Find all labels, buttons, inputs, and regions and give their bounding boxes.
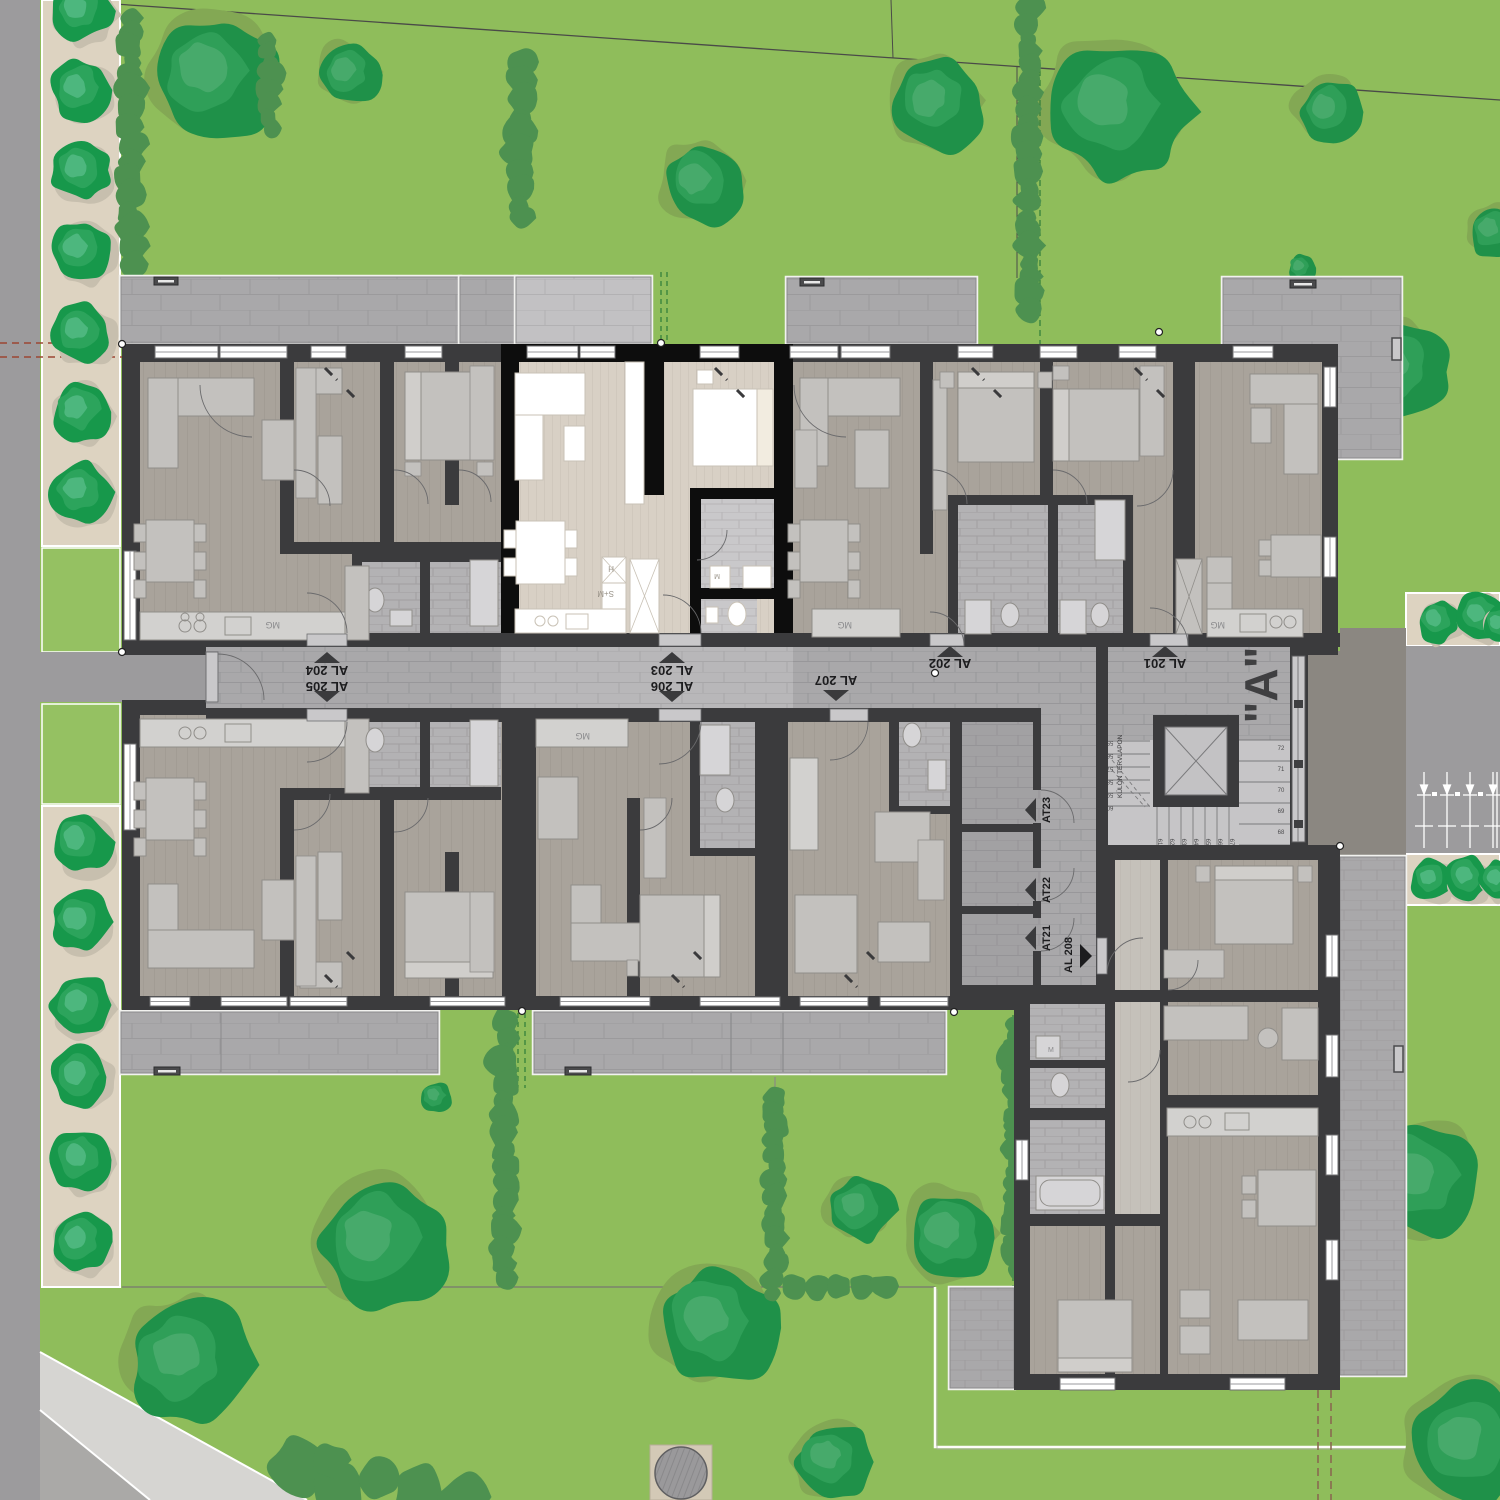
svg-text:AT21: AT21: [1041, 925, 1053, 951]
svg-text:62: 62: [1168, 839, 1174, 846]
svg-text:AL 203: AL 203: [651, 663, 693, 678]
svg-text:AL 201: AL 201: [1144, 656, 1186, 671]
svg-text:KÜLÖN TERVLAPON: KÜLÖN TERVLAPON: [1116, 734, 1124, 798]
svg-text:MG: MG: [576, 731, 591, 741]
svg-text:AL 202: AL 202: [929, 656, 971, 671]
svg-text:63: 63: [1180, 839, 1186, 846]
svg-text:S+M: S+M: [597, 589, 614, 598]
svg-text:"A": "A": [1235, 647, 1287, 724]
svg-text:AT23: AT23: [1041, 797, 1053, 823]
svg-text:MG: MG: [838, 620, 853, 630]
svg-text:72: 72: [1278, 746, 1285, 752]
svg-text:AL 207: AL 207: [815, 673, 857, 688]
svg-text:61: 61: [1156, 839, 1162, 846]
svg-text:68: 68: [1278, 830, 1285, 836]
svg-text:69: 69: [1278, 809, 1285, 815]
svg-text:AL 204: AL 204: [305, 663, 348, 678]
svg-text:66: 66: [1216, 839, 1222, 846]
svg-text:M: M: [1048, 1047, 1054, 1054]
svg-text:M: M: [714, 572, 720, 579]
svg-text:MG: MG: [266, 620, 281, 630]
svg-text:71: 71: [1278, 767, 1285, 773]
svg-text:64: 64: [1192, 839, 1198, 846]
svg-text:70: 70: [1278, 788, 1285, 794]
svg-text:65: 65: [1204, 839, 1210, 846]
svg-text:MG: MG: [1211, 620, 1226, 630]
svg-text:67: 67: [1228, 839, 1234, 846]
svg-text:AT22: AT22: [1041, 877, 1053, 903]
svg-text:H: H: [608, 564, 614, 573]
svg-text:AL 208: AL 208: [1063, 937, 1075, 973]
